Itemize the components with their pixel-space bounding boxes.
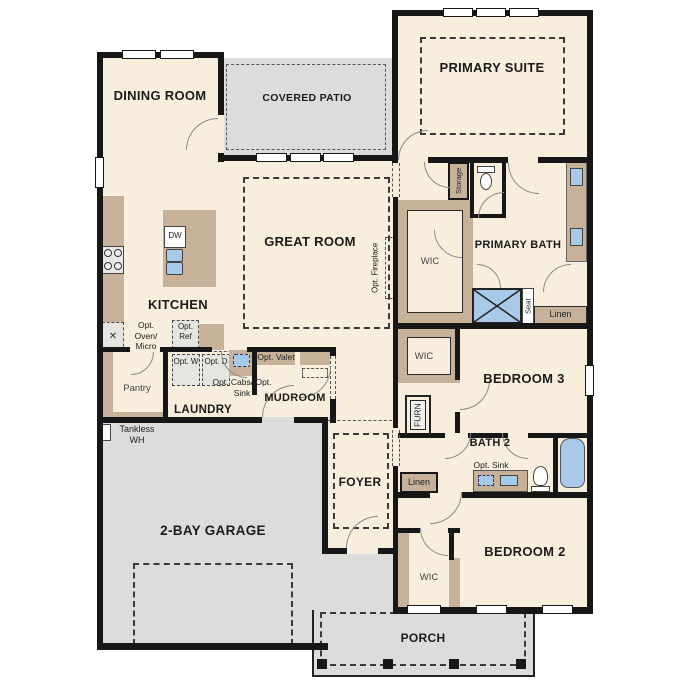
pantry-label: Pantry [107, 383, 167, 395]
bedroom3-label: BEDROOM 3 [464, 371, 584, 388]
opt-fireplace-label: Opt. Fireplace [368, 233, 383, 303]
opt-cabs-sink-label: Opt. Cabs/ Opt. Sink [210, 377, 274, 398]
window-suite-3 [509, 8, 539, 17]
island-sink-2 [166, 262, 183, 275]
wall-right-exterior [587, 10, 593, 614]
primary-vanity-sink-2 [570, 228, 583, 246]
wall-foyer-front-b [378, 548, 398, 554]
window-greatroom-2 [290, 153, 321, 162]
wall-spine-upper [393, 197, 398, 428]
linen-hall-label: Linen [400, 472, 438, 493]
patio-dashed-outline [226, 64, 386, 150]
window-dining-left [95, 157, 104, 188]
porch-post [449, 659, 459, 669]
wall-bath2-bottom-b [462, 492, 593, 498]
burner-icon [114, 262, 122, 270]
tankless-wh-label: Tankless WH [112, 424, 162, 447]
bath2-toilet-bowl [533, 466, 548, 486]
porch-post [516, 659, 526, 669]
window-greatroom-3 [323, 153, 354, 162]
floor-plan: DW ✕ Opt. Ref Opt. W Opt. D [0, 0, 687, 687]
burner-icon [104, 262, 112, 270]
window-bedroom3 [585, 365, 594, 396]
porch-post [383, 659, 393, 669]
burner-icon [104, 249, 112, 257]
porch-post [317, 659, 327, 669]
wall-mudroom-stub-top [330, 347, 336, 356]
wic-bedroom2-wall-left [398, 532, 409, 607]
primary-toilet-bowl [480, 173, 492, 190]
window-greatroom-1 [256, 153, 287, 162]
bath2-label: BATH 2 [468, 436, 512, 450]
window-suite-2 [476, 8, 506, 17]
wall-foyer-front-a [322, 548, 347, 554]
opt-washer-label: Opt. W [172, 357, 200, 367]
porch-label: PORCH [383, 631, 463, 646]
wic-primary-label: WIC [408, 256, 452, 268]
wall-kitchen-laundry-a [97, 347, 130, 352]
wall-wic2-top-a [398, 528, 420, 533]
great-room-label: GREAT ROOM [262, 234, 358, 251]
wic-hall-label: WIC [402, 351, 446, 363]
primary-bath-label: PRIMARY BATH [472, 238, 564, 252]
kitchen-label: KITCHEN [128, 297, 228, 314]
window-bedroom2-3 [542, 605, 573, 614]
opening-foyer-hall [392, 430, 400, 466]
opt-valet-label: Opt. Valet [255, 352, 297, 363]
opt-oven-micro-label: Opt. Oven/ Micro [127, 320, 165, 352]
wall-toilet-left [470, 160, 474, 218]
opening-greatroom-hall [392, 163, 400, 197]
furnace-label: FURN [405, 395, 431, 435]
laundry-label: LAUNDRY [163, 403, 243, 418]
primary-suite-dashed-outline [420, 37, 565, 135]
burner-icon [114, 249, 122, 257]
door-gap-patio-dining [218, 115, 224, 153]
linen-primary-label: Linen [534, 306, 587, 324]
wall-bath2-top-c [528, 433, 593, 438]
primary-toilet-tank [477, 166, 495, 173]
primary-suite-label: PRIMARY SUITE [437, 60, 547, 77]
wall-bed3-left-a [455, 328, 460, 380]
wic-bedroom2-label: WIC [407, 572, 451, 584]
wall-wic2-right [449, 528, 454, 560]
porch-notch-floor [322, 554, 399, 612]
window-dining-2 [160, 50, 194, 59]
bath2-tub [560, 438, 585, 488]
cooktop [102, 246, 124, 274]
garage-door-dashed [133, 563, 293, 645]
window-suite-1 [443, 8, 473, 17]
foyer-label: FOYER [320, 475, 400, 490]
bedroom2-label: BEDROOM 2 [465, 544, 585, 561]
storage-label: Storage [448, 162, 469, 200]
wall-bed3-left-b [455, 412, 460, 433]
opt-sink-bath2-label: Opt. Sink [462, 460, 520, 471]
mudroom-bench [300, 350, 330, 365]
seat-label: Seat [522, 288, 534, 324]
door-gap-mud-garage [262, 417, 294, 423]
wall-garage-bottom [97, 643, 328, 650]
wall-tub-divider [553, 438, 558, 492]
window-dining-1 [122, 50, 156, 59]
dishwasher-label: DW [164, 226, 186, 248]
covered-patio-label: COVERED PATIO [261, 92, 353, 105]
primary-vanity-sink [570, 168, 583, 186]
island-sink [166, 249, 183, 262]
bath2-sink [500, 475, 518, 486]
window-bedroom2-1 [407, 605, 441, 614]
bath2-opt-sink [478, 475, 494, 486]
window-bedroom2-2 [476, 605, 507, 614]
dining-room-label: DINING ROOM [110, 88, 210, 105]
wall-suite-left [392, 10, 398, 162]
primary-shower [472, 288, 522, 324]
opt-ref-label: Opt. Ref [172, 322, 199, 342]
garage-label: 2-BAY GARAGE [160, 522, 266, 539]
